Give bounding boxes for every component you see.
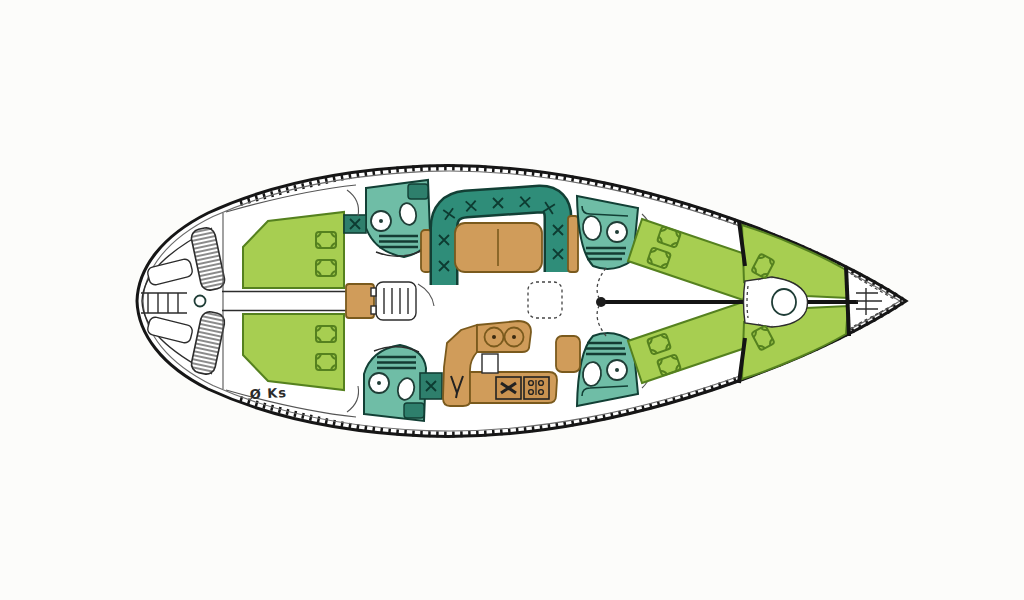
vanity-counter	[556, 336, 580, 372]
nav-seat	[420, 373, 442, 399]
sink-drain-icon	[524, 377, 549, 399]
sink-drain	[512, 335, 516, 339]
seat-icon	[772, 289, 796, 315]
sink-drain	[492, 335, 496, 339]
floor-plan-canvas: Ø Ks	[0, 0, 1024, 600]
mast-icon	[596, 297, 606, 307]
stove-icon	[496, 377, 521, 399]
toilet-drain	[377, 381, 381, 385]
engine-box	[346, 284, 374, 318]
toilet-drain	[379, 219, 383, 223]
brand-mark: Ø Ks	[249, 385, 287, 402]
settee-backrest-right	[568, 216, 578, 272]
sink-drain	[615, 230, 619, 234]
galley-cutout	[482, 354, 498, 373]
head-cabinet	[408, 184, 428, 199]
yacht-floor-plan: Ø Ks	[0, 0, 1024, 600]
salon-table	[455, 223, 542, 272]
head-cabinet	[404, 403, 424, 418]
helm-pedestal-icon	[195, 296, 206, 307]
sink-drain	[615, 368, 619, 372]
companionway-steps-icon	[371, 282, 416, 320]
